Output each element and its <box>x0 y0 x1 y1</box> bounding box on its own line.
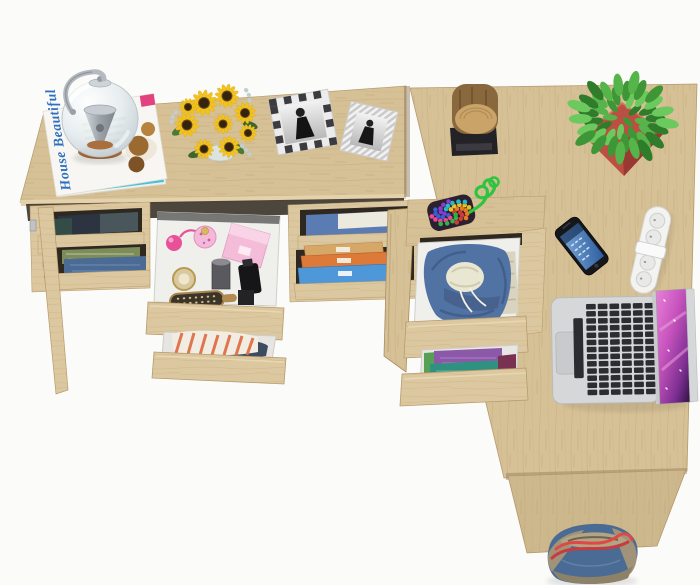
keyboard-key <box>598 332 608 338</box>
keyboard-key <box>599 354 609 360</box>
cover-corner-tab <box>140 94 156 107</box>
keyboard-key <box>633 339 643 345</box>
keyboard-key <box>611 375 621 381</box>
keyboard-key <box>599 389 609 395</box>
keyboard-key <box>610 325 620 331</box>
keyboard-key <box>623 389 633 395</box>
keyboard-key <box>621 318 631 324</box>
keyboard-key <box>598 311 608 317</box>
keyboard-key <box>621 325 631 331</box>
bottle-cap <box>242 259 253 267</box>
keyboard-key <box>598 318 608 324</box>
keyboard-key <box>609 303 619 309</box>
photo-frame-checkered <box>269 89 338 155</box>
storage-boxes <box>298 242 392 287</box>
checker-square <box>284 145 293 154</box>
keyboard-key <box>634 346 644 352</box>
sunflower-center <box>222 91 232 101</box>
keyboard-key <box>587 382 597 388</box>
keyboard-key <box>621 303 631 309</box>
photo-frame-striped <box>340 101 398 161</box>
perfume-cap <box>201 227 208 234</box>
sunflower <box>239 124 257 142</box>
checker-square <box>298 93 307 102</box>
tote-bag <box>546 524 638 585</box>
keyboard-key <box>622 332 632 338</box>
keyboard-key <box>634 353 644 359</box>
keyboard-key <box>610 318 620 324</box>
keyboard-key <box>622 382 632 388</box>
keyboard-key <box>634 389 644 395</box>
keyboard-key <box>646 381 656 387</box>
keyboard-key <box>645 346 655 352</box>
keyboard-key <box>610 361 620 367</box>
keyboard-key <box>645 360 655 366</box>
atomizer-highlight <box>169 238 174 243</box>
box-label <box>338 271 352 276</box>
keyboard-key <box>599 382 609 388</box>
keyboard-key <box>622 368 632 374</box>
sunflower-center <box>219 120 227 128</box>
keyboard-key <box>586 332 596 338</box>
keyboard-key <box>622 346 632 352</box>
product-photo: House Beautiful <box>0 0 700 585</box>
checker-square <box>283 96 292 105</box>
keyboard-key <box>586 318 596 324</box>
keyboard-key <box>633 324 643 330</box>
brush-handle <box>222 294 238 303</box>
checker-square <box>273 120 282 129</box>
keyboard-key <box>634 375 644 381</box>
perfume-dot <box>203 242 205 244</box>
cosmetics-drawer <box>146 212 284 340</box>
keyboard-key <box>610 339 620 345</box>
infuser-knob <box>96 124 104 132</box>
checker-square <box>313 91 322 100</box>
keyboard-key <box>598 304 608 310</box>
grey-cosmetic-jar <box>212 262 230 289</box>
keyboard-key <box>633 317 643 323</box>
sunflower-center <box>225 143 234 152</box>
folded-white-clothes <box>338 211 392 229</box>
atomizer-bulb <box>166 235 182 251</box>
keyboard-key <box>610 311 620 317</box>
keyboard-key <box>599 375 609 381</box>
box-label <box>337 258 351 263</box>
keyboard-key <box>598 339 608 345</box>
keyboard-key <box>598 325 608 331</box>
keyboard-key <box>611 368 621 374</box>
keyboard-key <box>587 354 597 360</box>
hinge <box>30 220 36 231</box>
keyboard-key <box>587 340 597 346</box>
infuser-top <box>84 105 116 115</box>
keyboard-key <box>599 368 609 374</box>
black-jar <box>238 290 254 305</box>
box-label <box>336 247 350 252</box>
right-drawer-unit <box>400 196 546 406</box>
keyboard-key <box>621 310 631 316</box>
log-decoration <box>450 84 498 156</box>
keyboard-key <box>610 353 620 359</box>
sunflower-center <box>184 103 191 110</box>
sunflower-center <box>241 109 250 118</box>
keyboard-key <box>587 347 597 353</box>
checker-square <box>299 142 308 151</box>
laptop-screen <box>656 289 690 404</box>
keyboard-key <box>645 331 655 337</box>
keyboard-key <box>645 339 655 345</box>
keyboard-key <box>587 368 597 374</box>
keyboard-key <box>611 389 621 395</box>
keyboard-key <box>622 360 632 366</box>
perfume-dot <box>208 239 211 242</box>
keyboard-key <box>622 339 632 345</box>
keyboard-key <box>633 332 643 338</box>
spacebar-key <box>573 318 584 378</box>
jar-lid <box>212 259 230 266</box>
keyboard-key <box>587 390 597 396</box>
checker-square <box>270 106 279 115</box>
keyboard-key <box>622 375 632 381</box>
keyboard-key <box>611 382 621 388</box>
checker-square <box>314 140 323 149</box>
keyboard-key <box>598 347 608 353</box>
scene-illustration: House Beautiful <box>0 0 700 585</box>
compact-center <box>179 274 190 285</box>
keyboard-key <box>586 311 596 317</box>
keyboard-key <box>646 367 656 373</box>
keyboard-key <box>633 303 643 309</box>
keyboard-key <box>634 360 644 366</box>
checker-square <box>275 135 284 144</box>
sunflower-center <box>199 98 210 109</box>
keyboard-key <box>610 346 620 352</box>
keyboard-key <box>586 325 596 331</box>
laptop <box>551 289 698 412</box>
checker-square <box>269 98 278 107</box>
sunflower-center <box>182 120 192 130</box>
keyboard-key <box>610 332 620 338</box>
keyboard-key <box>634 367 644 373</box>
keyboard-key <box>599 361 609 367</box>
keyboard-key <box>587 361 597 367</box>
keyboard-key <box>645 353 655 359</box>
checker-square <box>323 104 332 113</box>
sunflower-center <box>200 145 208 153</box>
keyboard-key <box>587 375 597 381</box>
keyboard-key <box>622 353 632 359</box>
sunflower <box>179 98 197 116</box>
keyboard-key <box>586 304 596 310</box>
folded-slate-clothes <box>100 212 138 233</box>
checker-square <box>326 119 335 128</box>
desk-junction-seam <box>404 86 410 197</box>
handle-bracket <box>70 109 76 115</box>
hoodie-drawer <box>404 238 528 358</box>
keyboard-key <box>633 310 643 316</box>
keyboard-key <box>634 382 644 388</box>
keyboard-key <box>646 389 656 395</box>
checker-square <box>329 137 338 146</box>
base-inner-band <box>456 143 492 151</box>
sunflower-center <box>244 129 251 136</box>
keyboard-key <box>646 374 656 380</box>
striped-clothes-drawer <box>152 331 286 384</box>
kettle-copper-ring <box>87 141 113 150</box>
